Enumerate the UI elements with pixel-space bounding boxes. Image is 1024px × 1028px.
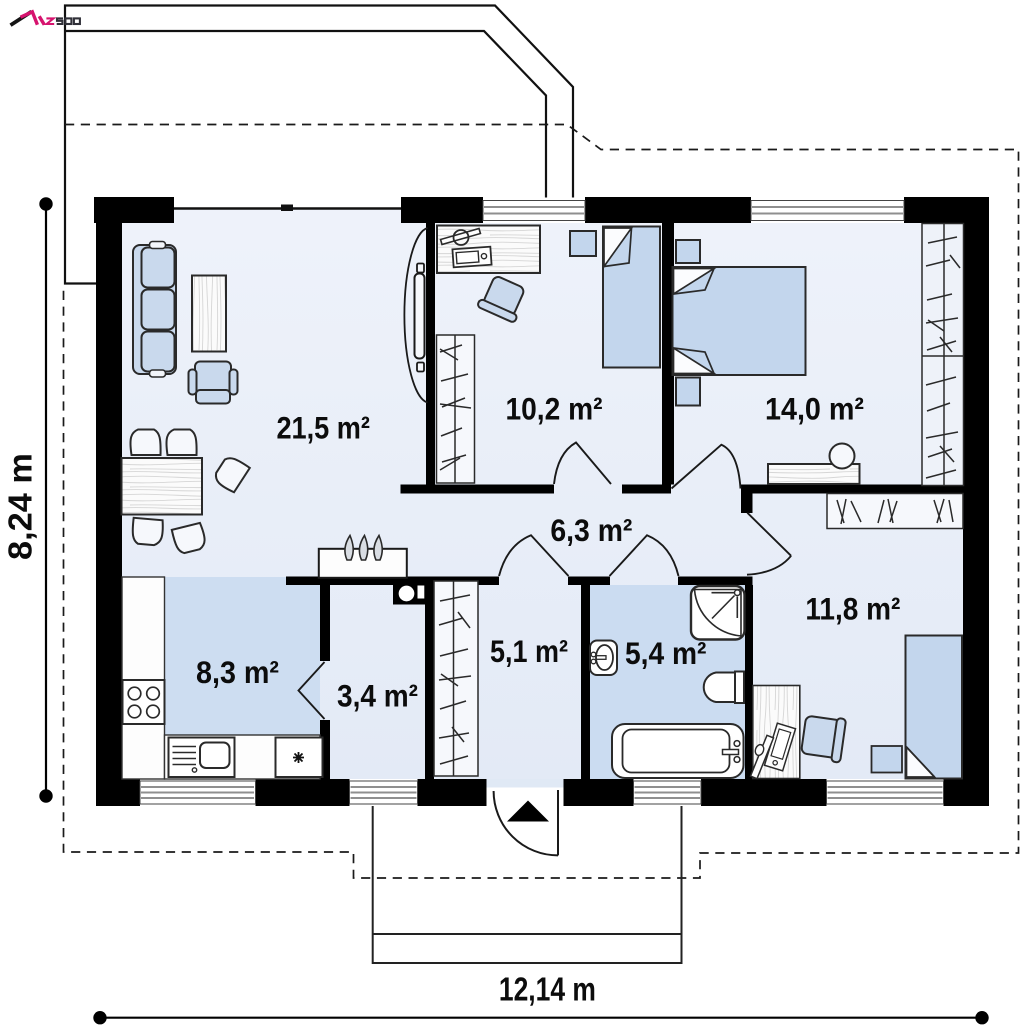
svg-text:3,4 m²: 3,4 m² bbox=[337, 678, 418, 714]
svg-text:8,3 m²: 8,3 m² bbox=[196, 654, 279, 690]
svg-text:8,24 m: 8,24 m bbox=[2, 453, 39, 560]
svg-text:6,3 m²: 6,3 m² bbox=[550, 512, 632, 548]
svg-text:10,2 m²: 10,2 m² bbox=[506, 391, 603, 427]
svg-text:11,8 m²: 11,8 m² bbox=[805, 591, 900, 627]
svg-text:21,5 m²: 21,5 m² bbox=[276, 409, 370, 445]
svg-text:12,14 m: 12,14 m bbox=[499, 971, 596, 1008]
svg-text:14,0 m²: 14,0 m² bbox=[765, 391, 864, 427]
svg-text:5,4 m²: 5,4 m² bbox=[625, 635, 707, 671]
svg-text:5,1 m²: 5,1 m² bbox=[490, 633, 568, 669]
